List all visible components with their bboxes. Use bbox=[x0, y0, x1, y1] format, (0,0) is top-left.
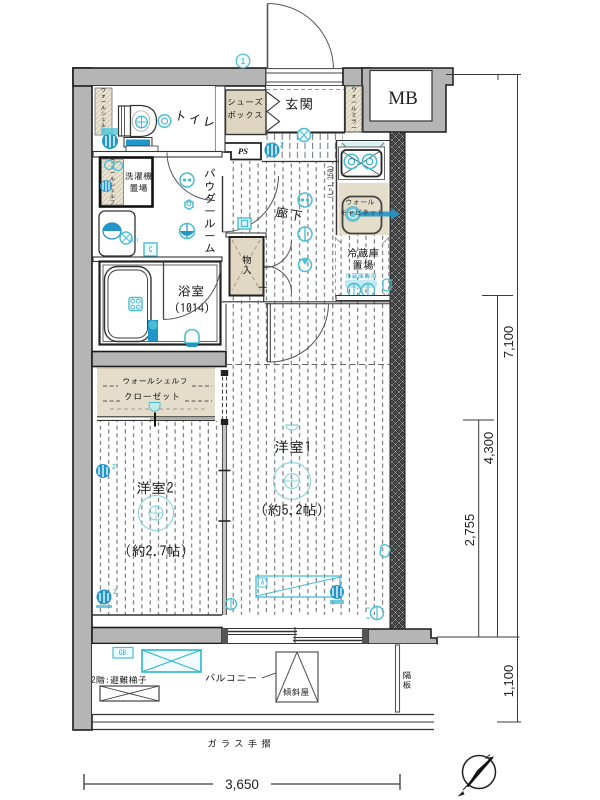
svg-text:7,100: 7,100 bbox=[501, 326, 516, 359]
svg-text:PS: PS bbox=[238, 146, 248, 156]
svg-text:3,650: 3,650 bbox=[225, 777, 259, 792]
svg-text:2: 2 bbox=[280, 142, 284, 149]
svg-text:2,755: 2,755 bbox=[462, 514, 477, 547]
svg-text:2: 2 bbox=[112, 464, 116, 471]
svg-text:2: 2 bbox=[113, 589, 117, 596]
svg-text:MB: MB bbox=[388, 88, 418, 109]
svg-text:1: 1 bbox=[241, 56, 246, 66]
svg-text:1,100: 1,100 bbox=[501, 665, 516, 698]
svg-text:4,300: 4,300 bbox=[481, 432, 496, 465]
